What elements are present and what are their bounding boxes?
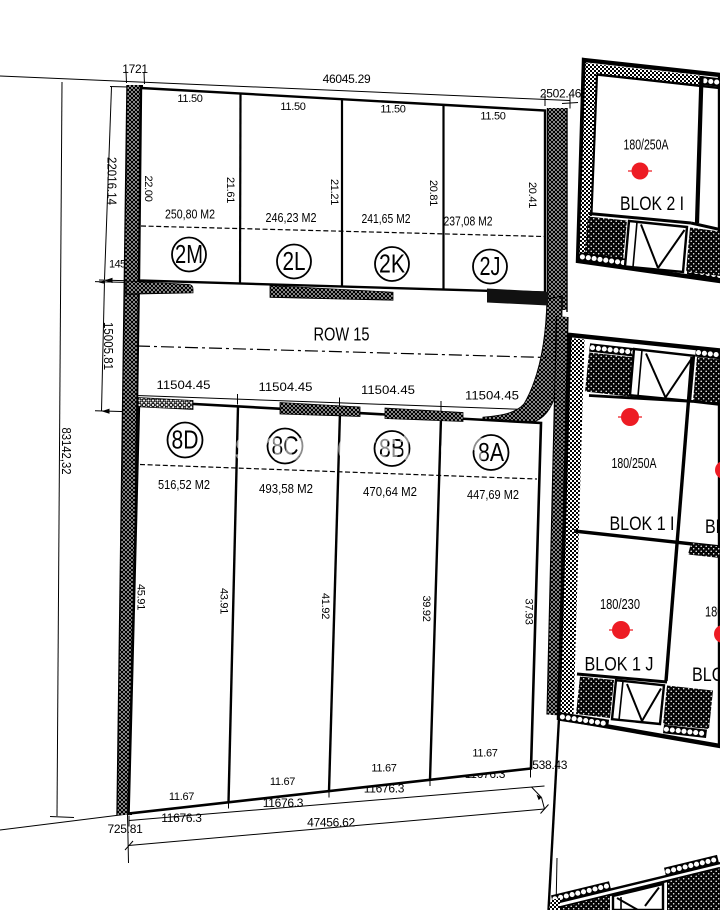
svg-text:180/250A: 180/250A	[612, 456, 657, 472]
svg-text:2502.46: 2502.46	[540, 87, 582, 101]
svg-text:43.91: 43.91	[218, 588, 230, 614]
svg-text:11.67: 11.67	[371, 763, 396, 775]
svg-text:2J: 2J	[480, 251, 501, 281]
svg-text:BLOK 1 J: BLOK 1 J	[692, 664, 720, 686]
svg-text:8D: 8D	[172, 425, 199, 455]
svg-text:2L: 2L	[283, 246, 306, 276]
svg-text:47456.62: 47456.62	[307, 816, 355, 830]
svg-text:21.61: 21.61	[224, 177, 236, 203]
svg-text:2K: 2K	[379, 249, 406, 279]
svg-text:22016.14: 22016.14	[105, 157, 120, 205]
svg-text:516,52 M2: 516,52 M2	[158, 477, 210, 492]
svg-text:45.91: 45.91	[135, 584, 147, 610]
svg-text:246,23 M2: 246,23 M2	[266, 210, 317, 225]
svg-text:11.67: 11.67	[270, 776, 295, 788]
svg-text:shutterstock: shutterstock	[234, 422, 487, 469]
svg-text:83142,32: 83142,32	[59, 428, 74, 475]
svg-text:493,58 M2: 493,58 M2	[259, 481, 313, 496]
svg-text:11676.3: 11676.3	[161, 811, 202, 825]
svg-text:ROW 15: ROW 15	[314, 325, 370, 345]
svg-text:11.50: 11.50	[280, 101, 305, 113]
svg-text:15005.81: 15005.81	[101, 322, 116, 370]
svg-text:180/230: 180/230	[600, 597, 640, 613]
svg-text:20.41: 20.41	[526, 182, 538, 208]
svg-text:470,64 M2: 470,64 M2	[363, 484, 417, 499]
svg-text:BLOK 2 I: BLOK 2 I	[620, 193, 684, 215]
svg-text:20.81: 20.81	[427, 180, 439, 206]
svg-text:2M: 2M	[175, 239, 203, 269]
svg-text:180/250A: 180/250A	[624, 138, 669, 154]
svg-text:241,65 M2: 241,65 M2	[362, 211, 411, 226]
svg-text:BLOK 1 I: BLOK 1 I	[610, 513, 675, 535]
svg-text:11504.45: 11504.45	[361, 383, 415, 397]
svg-text:37.93: 37.93	[523, 598, 535, 624]
svg-text:11504.45: 11504.45	[259, 380, 313, 394]
svg-text:237,08 M2: 237,08 M2	[444, 214, 493, 229]
svg-text:39.92: 39.92	[420, 595, 432, 621]
svg-text:11.67: 11.67	[169, 791, 194, 803]
svg-text:180/230: 180/230	[705, 605, 720, 621]
svg-text:41.92: 41.92	[319, 593, 331, 619]
svg-text:1721: 1721	[122, 62, 148, 76]
svg-text:11.50: 11.50	[480, 111, 505, 123]
svg-text:46045.29: 46045.29	[323, 72, 371, 86]
svg-text:BLOK 1 I: BLOK 1 I	[705, 516, 720, 538]
svg-text:725.81: 725.81	[108, 822, 144, 836]
svg-text:BLOK 1 J: BLOK 1 J	[585, 654, 654, 676]
svg-text:11.67: 11.67	[472, 748, 497, 760]
svg-text:11.50: 11.50	[380, 104, 405, 116]
svg-text:22.00: 22.00	[142, 175, 154, 201]
svg-text:11504.45: 11504.45	[465, 389, 519, 403]
svg-text:11.50: 11.50	[177, 93, 202, 105]
svg-text:447,69 M2: 447,69 M2	[467, 487, 519, 502]
svg-text:250,80 M2: 250,80 M2	[165, 207, 215, 222]
svg-text:11504.45: 11504.45	[157, 378, 211, 392]
svg-text:21.21: 21.21	[328, 179, 340, 205]
